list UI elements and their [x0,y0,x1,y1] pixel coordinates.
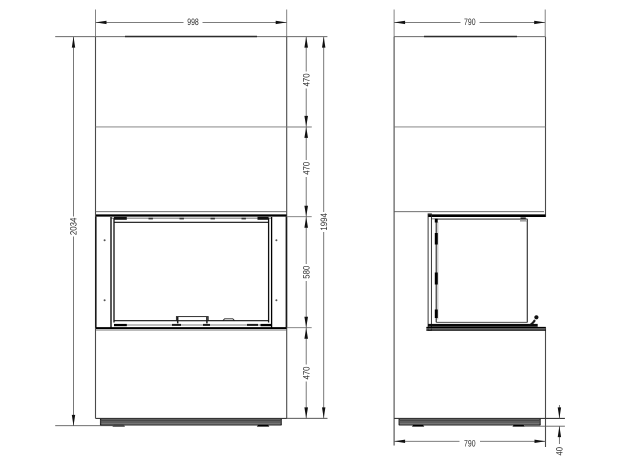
svg-text:580: 580 [301,266,311,279]
svg-text:790: 790 [464,438,476,448]
svg-text:470: 470 [301,367,311,380]
svg-text:470: 470 [301,73,311,86]
svg-text:2034: 2034 [69,218,79,236]
svg-text:40: 40 [555,447,565,456]
svg-text:998: 998 [187,17,199,27]
svg-text:790: 790 [464,17,476,27]
svg-text:1994: 1994 [319,213,329,231]
svg-text:470: 470 [301,162,311,175]
